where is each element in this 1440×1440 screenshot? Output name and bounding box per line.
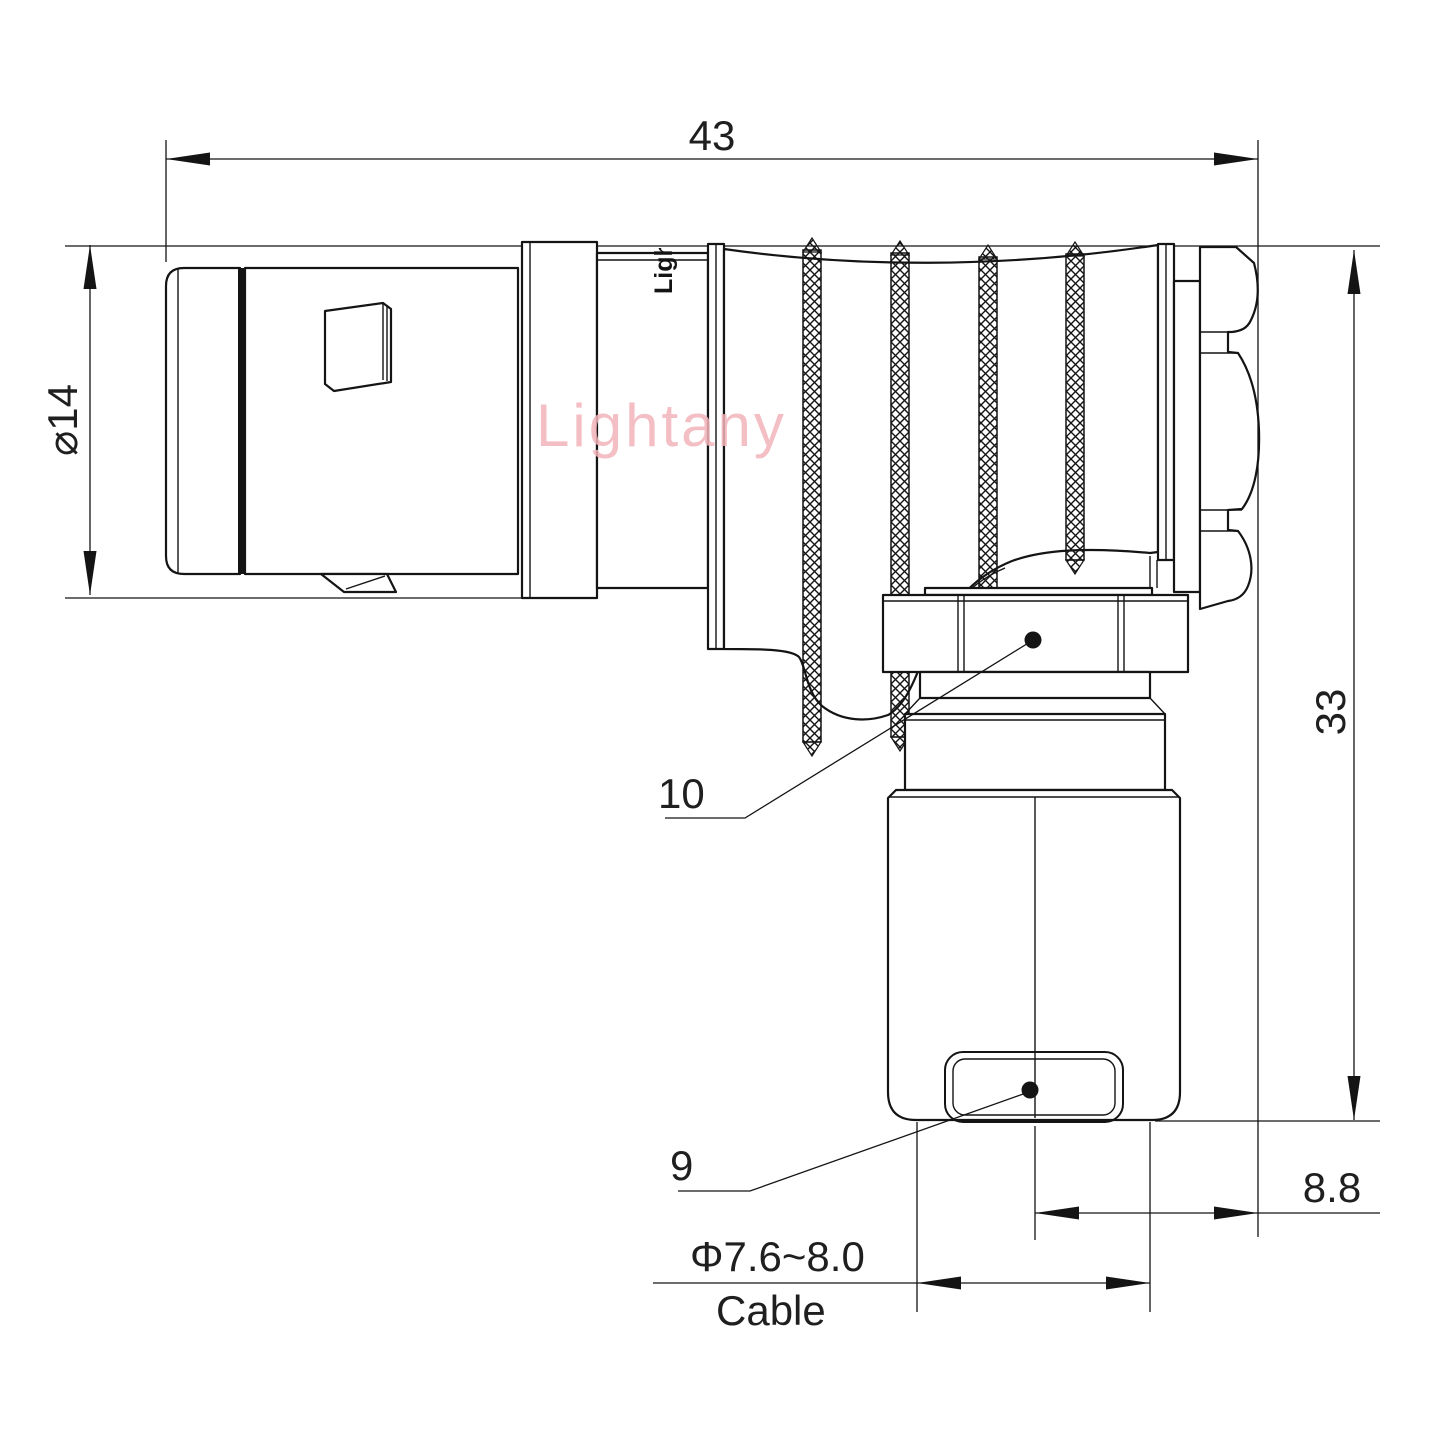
- dimension-value: 33: [1307, 689, 1354, 736]
- arrow-head: [917, 1277, 961, 1290]
- leader-dot: [1022, 1082, 1039, 1099]
- connector-technical-drawing: Lightany Lightany 43 ⌀14 33 8.8: [0, 0, 1440, 1440]
- part-marking: Lightany: [650, 190, 678, 294]
- knurl-band: [891, 241, 909, 751]
- part-marking-text: Lightany: [650, 190, 678, 294]
- cable-label: Cable: [716, 1287, 826, 1334]
- arrow-head: [1106, 1277, 1150, 1290]
- washer-ring: [920, 672, 1150, 698]
- arrow-head: [1214, 153, 1258, 166]
- dimension-value: 43: [689, 112, 736, 159]
- knurl-band: [803, 238, 821, 756]
- dimension-value: 8.8: [1303, 1164, 1361, 1211]
- cable-boot: [888, 790, 1180, 1120]
- leader-dot: [1025, 632, 1042, 649]
- dimension-value: ⌀14: [39, 384, 86, 456]
- callout-number: 9: [670, 1142, 693, 1189]
- dimension-cable: Φ7.6~8.0 Cable: [653, 1122, 1150, 1334]
- flare-edges: [905, 698, 1165, 714]
- mid-tube: [905, 714, 1165, 790]
- rear-block: [1174, 281, 1200, 592]
- keyway-block: [325, 303, 391, 391]
- arrow-head: [1348, 250, 1361, 294]
- dimension-value: Φ7.6~8.0: [690, 1233, 865, 1280]
- arrow-head: [84, 551, 97, 595]
- gland-cap: [1200, 247, 1259, 609]
- knurl-band: [1066, 242, 1084, 574]
- watermark-text: Lightany: [536, 392, 787, 459]
- callout-number: 10: [658, 770, 705, 817]
- arrow-head: [166, 153, 210, 166]
- drawing-canvas: Lightany Lightany 43 ⌀14 33 8.8: [0, 0, 1440, 1440]
- arrow-head: [84, 245, 97, 289]
- front-cap: [166, 268, 240, 574]
- arrow-head: [1348, 1076, 1361, 1120]
- dimension-rear-offset: 8.8: [1035, 1126, 1380, 1240]
- connector-part: [166, 238, 1259, 1122]
- arrow-head: [1035, 1207, 1079, 1220]
- arrow-head: [1214, 1207, 1258, 1220]
